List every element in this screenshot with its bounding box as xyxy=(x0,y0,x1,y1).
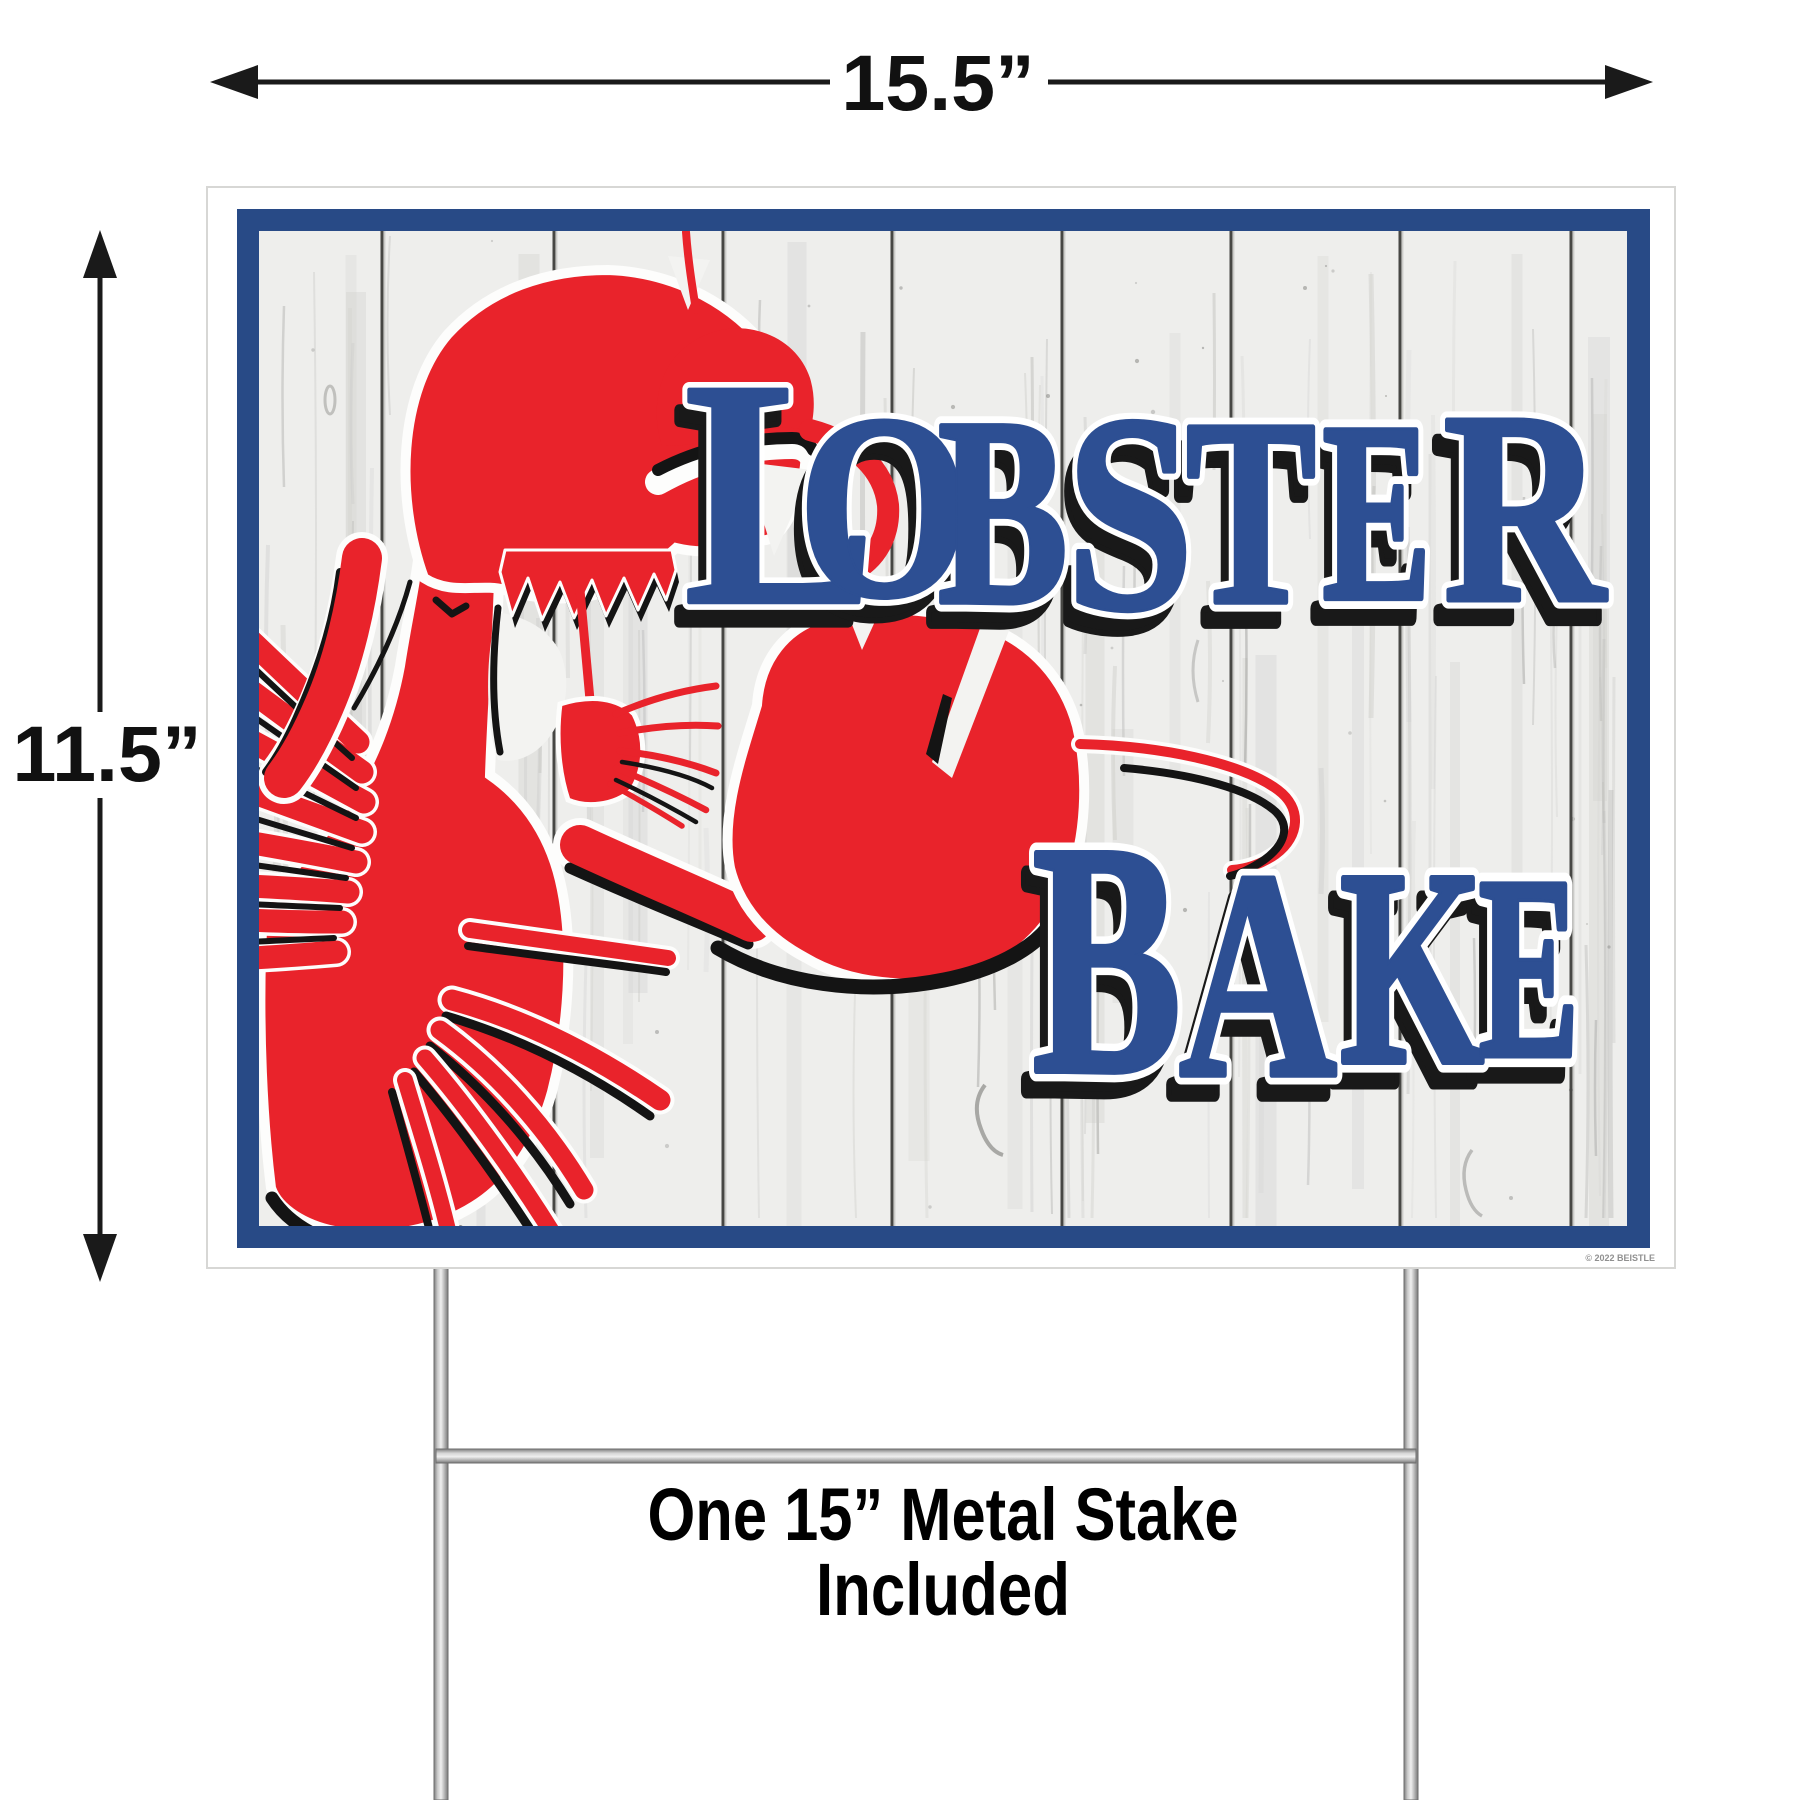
svg-text:K: K xyxy=(1340,813,1484,1123)
svg-text:T: T xyxy=(1186,365,1316,661)
svg-text:B: B xyxy=(938,363,1068,661)
svg-text:© 2022 BEISTLE: © 2022 BEISTLE xyxy=(1585,1253,1655,1263)
svg-text:E: E xyxy=(1323,371,1432,654)
svg-text:S: S xyxy=(1066,357,1194,669)
svg-text:E: E xyxy=(1479,824,1579,1112)
svg-text:15.5”: 15.5” xyxy=(841,38,1034,127)
svg-text:R: R xyxy=(1443,357,1607,661)
svg-text:Included: Included xyxy=(816,1548,1070,1631)
svg-text:One 15” Metal Stake: One 15” Metal Stake xyxy=(648,1473,1239,1556)
svg-text:A: A xyxy=(1179,809,1337,1140)
svg-text:B: B xyxy=(1032,775,1181,1143)
svg-text:11.5”: 11.5” xyxy=(13,709,202,798)
